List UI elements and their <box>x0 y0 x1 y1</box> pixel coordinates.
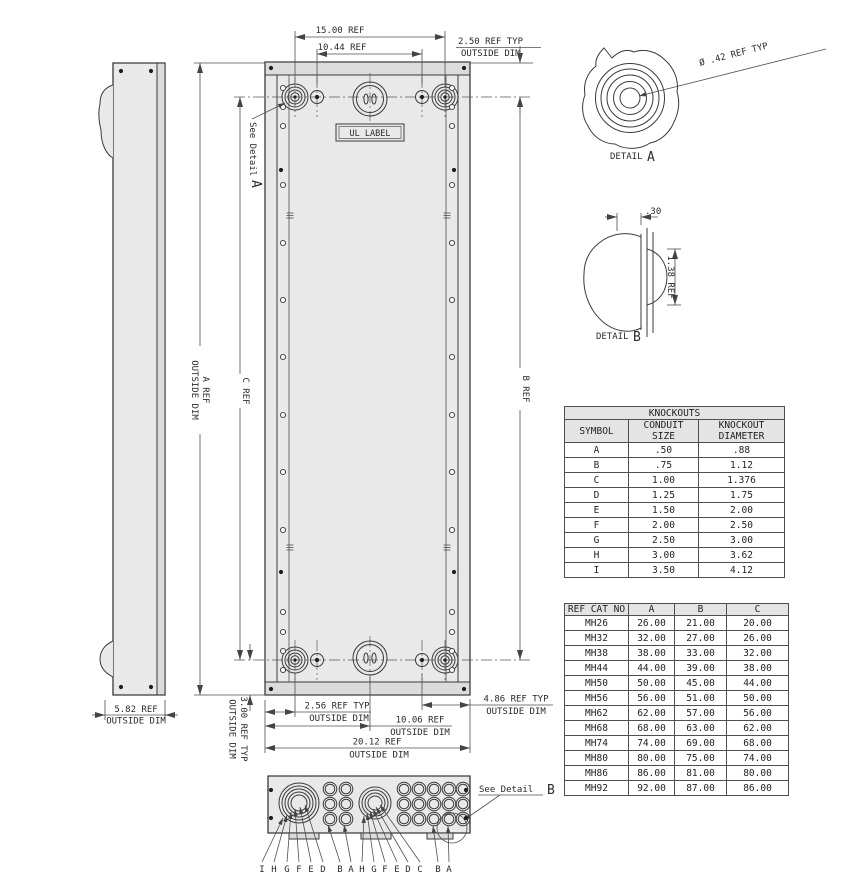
table-row: B.751.12 <box>565 458 785 473</box>
see-detail-a-text: See Detail <box>247 122 257 176</box>
flange-hole <box>280 469 285 474</box>
table-cell: 92.00 <box>629 781 675 796</box>
table-cell: 1.376 <box>699 473 785 488</box>
table-cell: 87.00 <box>675 781 727 796</box>
table-row: MH6868.0063.0062.00 <box>565 721 789 736</box>
knockout-profile-blob <box>584 234 641 332</box>
knockout-symbol-label: B <box>435 865 440 875</box>
table-row: MH5656.0051.0050.00 <box>565 691 789 706</box>
table-row: MH5050.0045.0044.00 <box>565 676 789 691</box>
fastener-dot <box>119 69 123 73</box>
detail-b-ref: B <box>633 330 641 345</box>
flange-hole <box>280 609 285 614</box>
knockouts-col-knockout-diameter: KNOCKOUT DIAMETER <box>699 420 785 443</box>
table-cell: 56.00 <box>629 691 675 706</box>
knockouts-table: KNOCKOUTS SYMBOL CONDUIT SIZE KNOCKOUT D… <box>564 406 785 578</box>
cat-col-c: C <box>727 604 789 616</box>
table-cell: 3.62 <box>699 548 785 563</box>
detail-a-ring <box>620 88 640 108</box>
flange-hole <box>449 469 454 474</box>
table-row: G2.503.00 <box>565 533 785 548</box>
dim-bottom-offset-l1: 3.00 REF TYP <box>238 696 248 762</box>
flange-hole <box>449 85 454 90</box>
table-cell: 2.00 <box>629 518 699 533</box>
table-cell: 38.00 <box>629 646 675 661</box>
side-view-edge-strip <box>157 64 165 694</box>
fastener-dot <box>269 66 273 70</box>
table-row: MH3838.0033.0032.00 <box>565 646 789 661</box>
bottom-view: See Detail B IHGFEDBAHGFEDCBA <box>259 776 555 875</box>
table-row: MH8686.0081.0080.00 <box>565 766 789 781</box>
table-cell: 68.00 <box>629 721 675 736</box>
table-cell: 81.00 <box>675 766 727 781</box>
table-row: MH4444.0039.0038.00 <box>565 661 789 676</box>
table-cell: 2.50 <box>699 518 785 533</box>
fastener-dot <box>149 685 153 689</box>
table-cell: 63.00 <box>675 721 727 736</box>
ul-label-text: UL LABEL <box>350 129 391 139</box>
table-cell: 39.00 <box>675 661 727 676</box>
table-cell: 57.00 <box>675 706 727 721</box>
dim-bottom-offset-l2: OUTSIDE DIM <box>227 699 237 759</box>
flange-hole <box>449 629 454 634</box>
fastener-dot <box>269 687 273 691</box>
table-cell: 2.00 <box>699 503 785 518</box>
table-cell: .88 <box>699 443 785 458</box>
flange-hole <box>449 667 454 672</box>
knockout-symbol-label: I <box>259 865 264 875</box>
fastener-dot <box>279 570 283 574</box>
mounting-tab <box>427 833 453 839</box>
table-cell: MH86 <box>565 766 629 781</box>
table-row: MH3232.0027.0026.00 <box>565 631 789 646</box>
flange-hole <box>280 182 285 187</box>
dim-bottom-1006-l2: OUTSIDE DIM <box>390 728 450 738</box>
cat-col-ref: REF CAT NO <box>565 604 629 616</box>
flange-hole <box>280 629 285 634</box>
table-cell: 3.00 <box>699 533 785 548</box>
detail-a-ring <box>614 82 647 115</box>
table-cell: 26.00 <box>727 631 789 646</box>
knockout-symbol-label: A <box>446 865 452 875</box>
table-cell: 38.00 <box>727 661 789 676</box>
table-row: H3.003.62 <box>565 548 785 563</box>
table-cell: MH62 <box>565 706 629 721</box>
table-cell: 1.00 <box>629 473 699 488</box>
table-cell: 62.00 <box>629 706 675 721</box>
knockout-symbol-label: H <box>271 865 276 875</box>
dim-bottom-256-l1: 2.56 REF TYP <box>304 702 370 712</box>
table-cell: 32.00 <box>727 646 789 661</box>
table-row: A.50.88 <box>565 443 785 458</box>
flange-hole <box>449 354 454 359</box>
table-cell: 56.00 <box>727 706 789 721</box>
knockouts-col-symbol: SYMBOL <box>565 420 629 443</box>
fastener-dot <box>269 788 273 792</box>
detail-a-view: Ø .42 REF TYP DETAIL A <box>583 40 826 165</box>
knockout-symbol-label: E <box>394 865 399 875</box>
front-view: UL LABEL <box>234 62 532 695</box>
table-cell: 21.00 <box>675 616 727 631</box>
table-cell: 86.00 <box>727 781 789 796</box>
knockout-profile-bump-top <box>99 85 113 158</box>
table-cell: 32.00 <box>629 631 675 646</box>
flange-hole <box>449 240 454 245</box>
table-cell: C <box>565 473 629 488</box>
fastener-dot <box>464 816 468 820</box>
table-row: MH6262.0057.0056.00 <box>565 706 789 721</box>
see-detail-b-text: See Detail <box>479 785 533 795</box>
knockout-profile-bump-bottom <box>100 641 113 677</box>
table-cell: 1.50 <box>629 503 699 518</box>
dim-bottom-2012-l1: 20.12 REF <box>353 738 402 748</box>
table-row: I3.504.12 <box>565 563 785 578</box>
knockouts-table-title: KNOCKOUTS <box>565 407 785 420</box>
knockout-symbol-label: C <box>417 865 422 875</box>
flange-hole <box>280 297 285 302</box>
table-cell: 1.12 <box>699 458 785 473</box>
fastener-dot <box>464 788 468 792</box>
table-cell: 62.00 <box>727 721 789 736</box>
table-cell: 26.00 <box>629 616 675 631</box>
knockout-symbol-label: G <box>284 865 289 875</box>
table-cell: 74.00 <box>727 751 789 766</box>
table-cell: D <box>565 488 629 503</box>
fastener-dot <box>279 168 283 172</box>
table-cell: H <box>565 548 629 563</box>
flange-hole <box>280 667 285 672</box>
detail-b-depth-dim: .30 <box>645 207 661 217</box>
flange-hole <box>280 412 285 417</box>
detail-a-ref: A <box>647 150 655 165</box>
dim-bottom-1006-l1: 10.06 REF <box>396 716 445 726</box>
dim-top-width: 15.00 REF <box>316 26 365 36</box>
table-cell: A <box>565 443 629 458</box>
table-cell: .75 <box>629 458 699 473</box>
dim-bottom-486-l1: 4.86 REF TYP <box>483 695 549 705</box>
table-cell: G <box>565 533 629 548</box>
detail-b-height-dim: 1.38 REF <box>665 255 675 298</box>
flange-hole <box>449 182 454 187</box>
table-cell: 27.00 <box>675 631 727 646</box>
knockout-symbol-label: B <box>337 865 342 875</box>
table-cell: 80.00 <box>629 751 675 766</box>
table-cell: MH92 <box>565 781 629 796</box>
table-cell: 86.00 <box>629 766 675 781</box>
flange-hole <box>449 104 454 109</box>
fastener-dot <box>452 570 456 574</box>
see-detail-b-ref: B <box>547 783 555 798</box>
table-cell: B <box>565 458 629 473</box>
front-bottom-cap <box>266 682 469 694</box>
table-cell: 2.50 <box>629 533 699 548</box>
table-cell: 1.75 <box>699 488 785 503</box>
table-cell: E <box>565 503 629 518</box>
knockout-symbol-label: D <box>405 865 410 875</box>
detail-a-ring <box>596 64 665 133</box>
table-cell: 4.12 <box>699 563 785 578</box>
flange-hole <box>449 609 454 614</box>
flange-hole <box>449 297 454 302</box>
table-cell: 1.25 <box>629 488 699 503</box>
dim-height-b: B REF <box>520 375 530 402</box>
table-cell: 50.00 <box>727 691 789 706</box>
knockout-symbol-label: F <box>382 865 387 875</box>
table-cell: MH68 <box>565 721 629 736</box>
table-cell: MH44 <box>565 661 629 676</box>
table-cell: MH74 <box>565 736 629 751</box>
table-cell: 44.00 <box>629 661 675 676</box>
table-cell: 44.00 <box>727 676 789 691</box>
table-cell: MH50 <box>565 676 629 691</box>
fastener-dot <box>462 66 466 70</box>
flange-hole <box>449 648 454 653</box>
dim-side-depth-l2: OUTSIDE DIM <box>106 717 166 727</box>
fastener-dot <box>149 69 153 73</box>
table-cell: 69.00 <box>675 736 727 751</box>
dim-side-depth-l1: 5.82 REF <box>114 705 157 715</box>
table-row: MH7474.0069.0068.00 <box>565 736 789 751</box>
dim-bottom-486-l2: OUTSIDE DIM <box>486 707 546 717</box>
dim-height-a-l1: A REF <box>200 376 210 403</box>
dim-top-inner-width: 10.44 REF <box>318 43 367 53</box>
detail-a-ring <box>601 69 659 127</box>
table-row: MH9292.0087.0086.00 <box>565 781 789 796</box>
dim-bottom-2012-l2: OUTSIDE DIM <box>349 751 409 761</box>
dim-height-c: C REF <box>240 377 250 404</box>
knockout-symbol-label: A <box>348 865 354 875</box>
knockout-symbol-label: D <box>320 865 325 875</box>
table-row: MH8080.0075.0074.00 <box>565 751 789 766</box>
flange-hole <box>280 527 285 532</box>
flange-hole <box>280 648 285 653</box>
dim-height-a-l2: OUTSIDE DIM <box>189 360 199 420</box>
table-cell: 50.00 <box>629 676 675 691</box>
table-cell: 75.00 <box>675 751 727 766</box>
table-cell: MH38 <box>565 646 629 661</box>
knockout-symbol-label: H <box>359 865 364 875</box>
knockout-symbol-label: F <box>296 865 301 875</box>
table-cell: F <box>565 518 629 533</box>
table-cell: 68.00 <box>727 736 789 751</box>
table-cell: 3.50 <box>629 563 699 578</box>
table-row: MH2626.0021.0020.00 <box>565 616 789 631</box>
dim-bottom-256-l2: OUTSIDE DIM <box>309 714 369 724</box>
side-view <box>99 63 165 695</box>
table-cell: 33.00 <box>675 646 727 661</box>
flange-hole <box>280 85 285 90</box>
drawing-sheet: UL LABEL See Detail B IHGFEDBAHGFEDCBA Ø… <box>0 0 860 882</box>
flange-hole <box>449 412 454 417</box>
detail-a-dim-text: Ø .42 REF TYP <box>698 40 770 68</box>
see-detail-a-ref: A <box>248 180 263 188</box>
table-cell: 51.00 <box>675 691 727 706</box>
front-top-cap <box>266 63 469 75</box>
table-cell: .50 <box>629 443 699 458</box>
table-cell: 80.00 <box>727 766 789 781</box>
dim-top-offset-l1: 2.50 REF TYP <box>458 37 524 47</box>
table-cell: MH80 <box>565 751 629 766</box>
flange-hole <box>280 354 285 359</box>
flange-hole <box>449 123 454 128</box>
fastener-dot <box>119 685 123 689</box>
table-row: F2.002.50 <box>565 518 785 533</box>
table-cell: 3.00 <box>629 548 699 563</box>
see-detail-b-note: See Detail B <box>464 783 555 820</box>
flange-hole <box>449 527 454 532</box>
table-cell: MH56 <box>565 691 629 706</box>
knockout-symbol-label: G <box>371 865 376 875</box>
catalog-table: REF CAT NO A B C MH2626.0021.0020.00MH32… <box>564 603 789 796</box>
table-cell: I <box>565 563 629 578</box>
table-row: C1.001.376 <box>565 473 785 488</box>
table-cell: 45.00 <box>675 676 727 691</box>
table-cell: MH26 <box>565 616 629 631</box>
fastener-dot <box>462 687 466 691</box>
knockout-symbol-label: E <box>308 865 313 875</box>
detail-b-view: .30 1.38 REF DETAIL B <box>584 207 681 345</box>
fastener-dot <box>269 816 273 820</box>
flange-hole <box>280 123 285 128</box>
table-cell: 74.00 <box>629 736 675 751</box>
fastener-dot <box>452 168 456 172</box>
cat-col-a: A <box>629 604 675 616</box>
table-cell: MH32 <box>565 631 629 646</box>
flange-hole <box>280 240 285 245</box>
cat-col-b: B <box>675 604 727 616</box>
detail-a-title: DETAIL <box>610 152 643 162</box>
detail-b-title: DETAIL <box>596 332 629 342</box>
dim-top-offset-l2: OUTSIDE DIM <box>461 49 521 59</box>
table-row: E1.502.00 <box>565 503 785 518</box>
table-row: D1.251.75 <box>565 488 785 503</box>
knockouts-col-conduit-size: CONDUIT SIZE <box>629 420 699 443</box>
knockout-dome-profile <box>647 249 667 305</box>
table-cell: 20.00 <box>727 616 789 631</box>
